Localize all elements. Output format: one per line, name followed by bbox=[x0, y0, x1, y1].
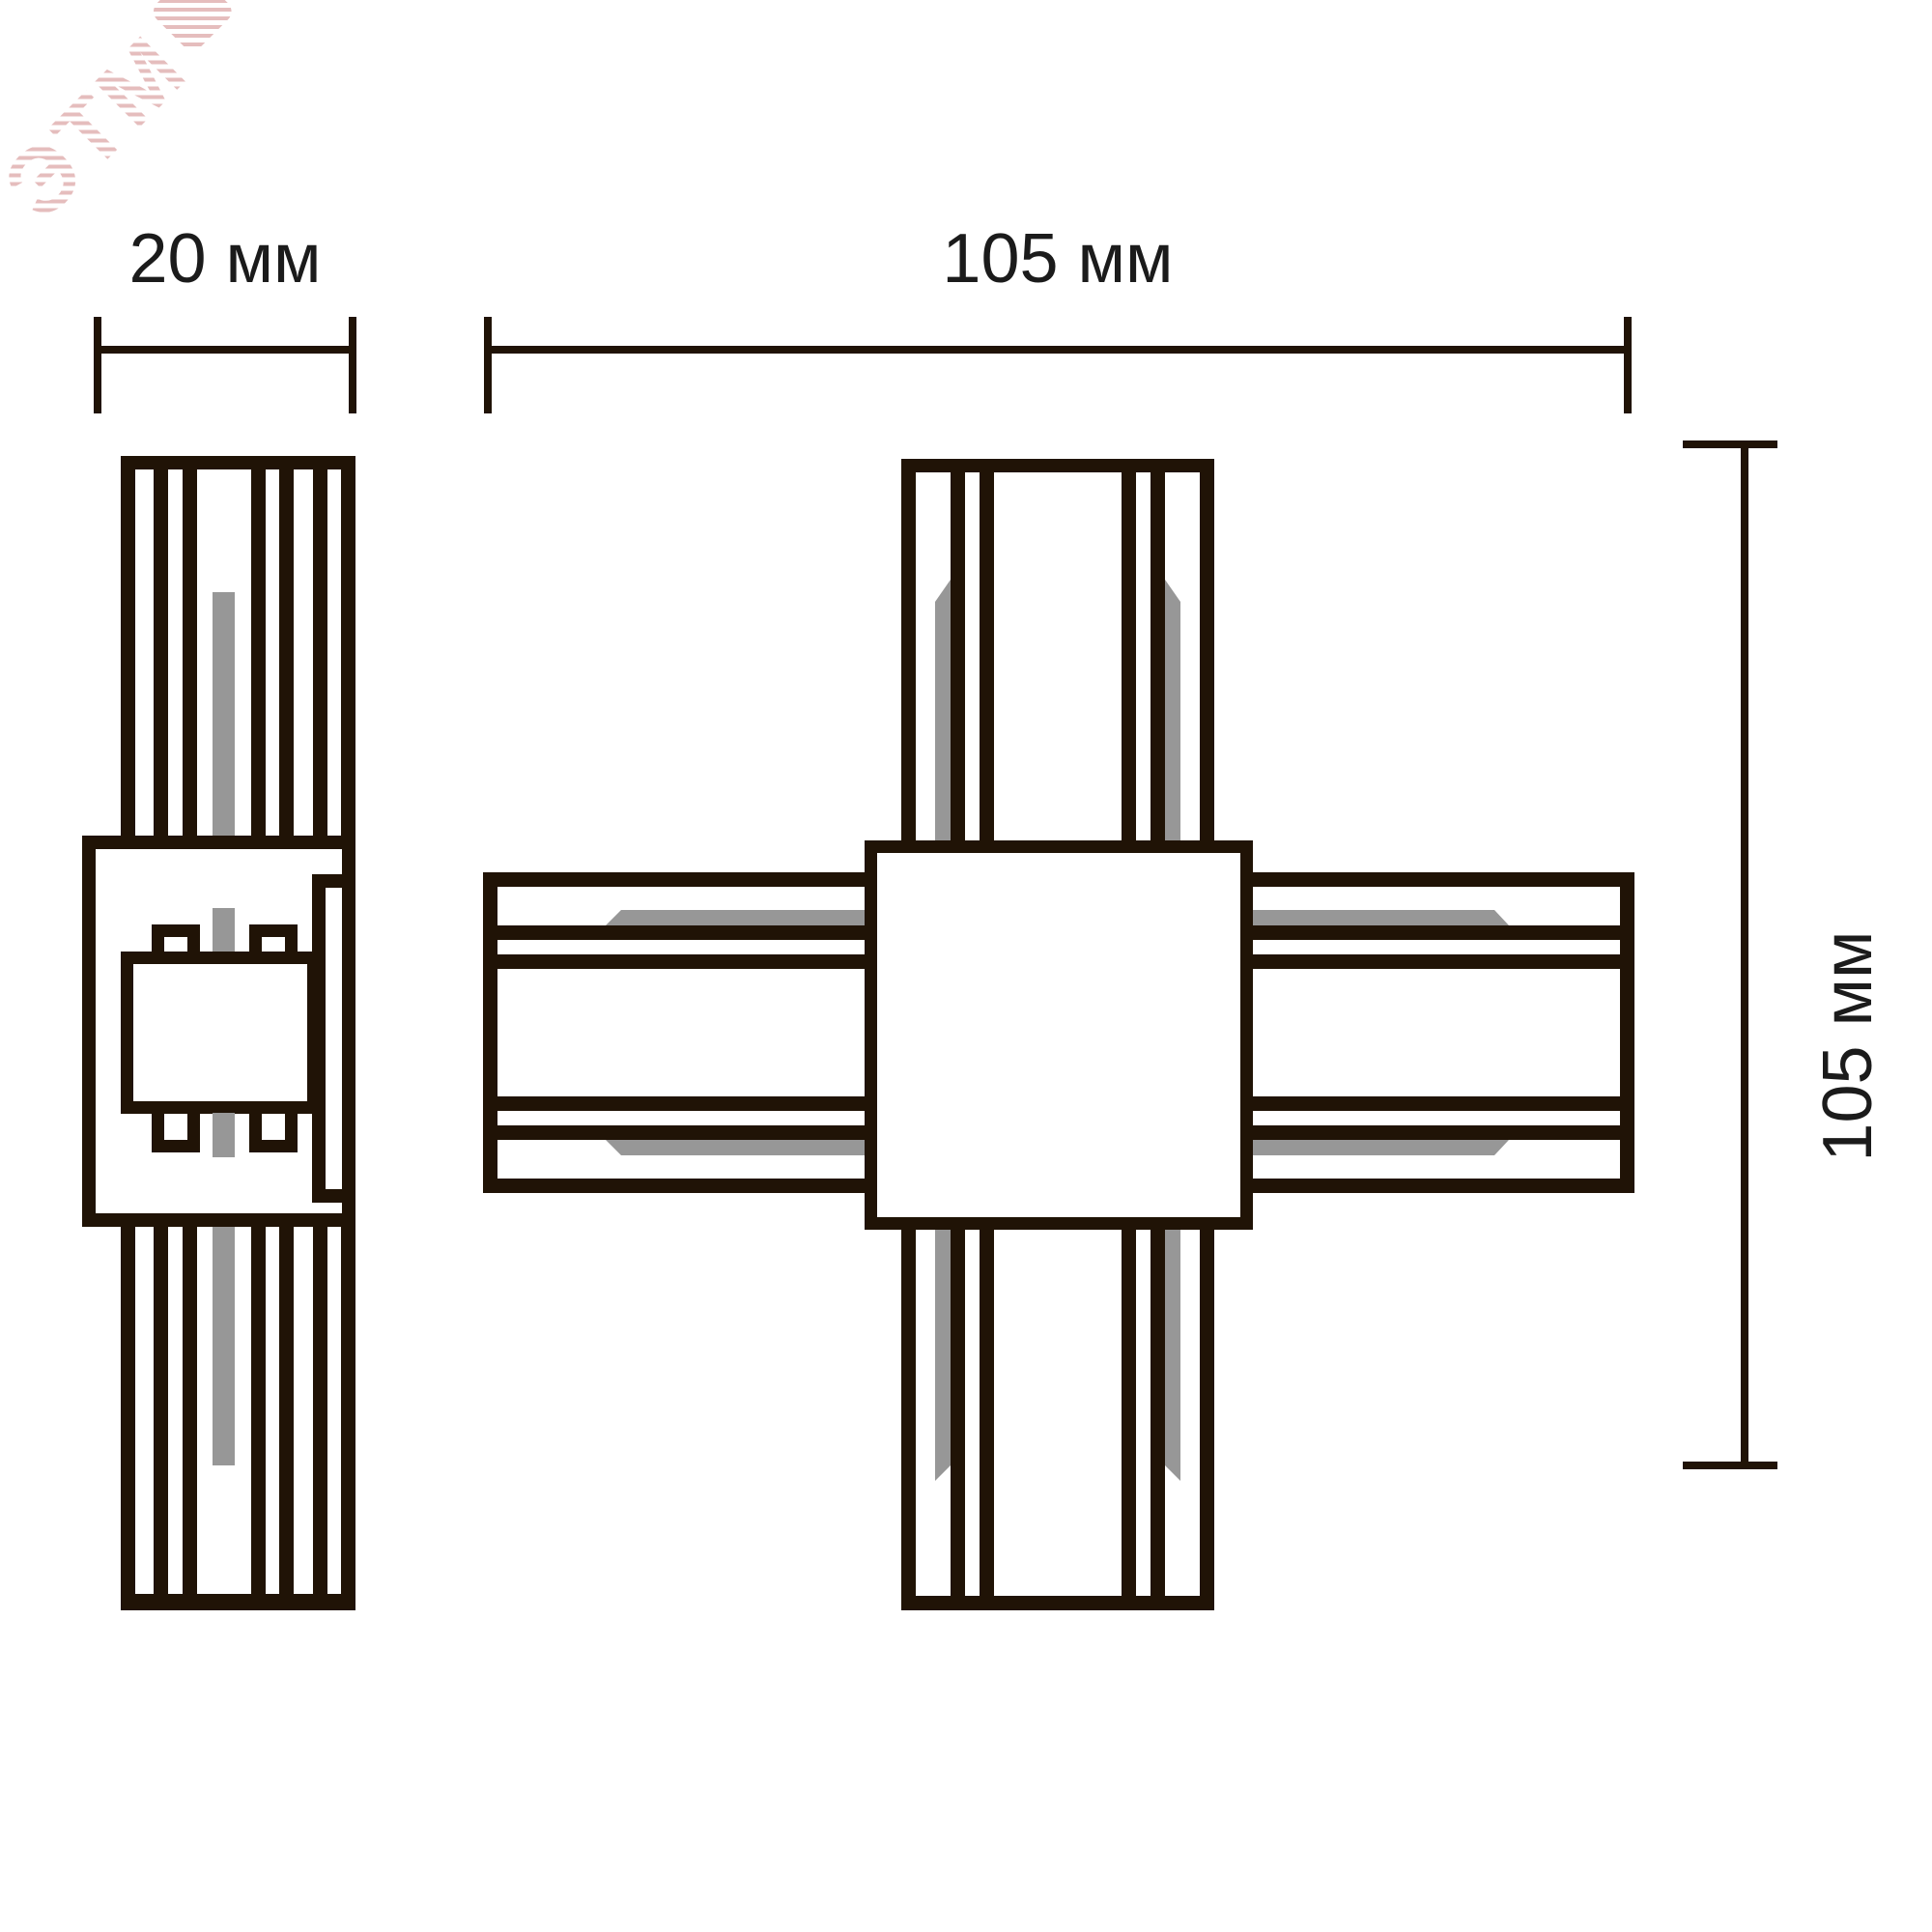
cross-left-arm-rib bbox=[497, 1125, 865, 1140]
cross-center-box bbox=[865, 840, 1253, 1230]
cross-bottom-arm-rib bbox=[980, 1230, 994, 1596]
cross-bottom-arm-rib bbox=[1122, 1230, 1136, 1596]
side-bottom-rail-rib bbox=[154, 1227, 168, 1594]
side-top-rail-rib bbox=[251, 469, 266, 836]
cross-right-arm-top-edge bbox=[1253, 872, 1634, 887]
cross-left-arm-rib bbox=[497, 954, 865, 969]
cross-left-arm-bottom-edge bbox=[483, 1179, 865, 1193]
dim-105mm-width-label: 105 мм bbox=[913, 224, 1203, 294]
side-top-rail-right-wall bbox=[341, 456, 355, 836]
side-top-rail-rib bbox=[154, 469, 168, 836]
side-connector-tab-top-right bbox=[249, 924, 298, 964]
cross-right-arm-rib bbox=[1253, 954, 1620, 969]
side-bottom-conductor-strip bbox=[213, 1227, 235, 1465]
cross-right-arm-conductor-bottom bbox=[1253, 1140, 1509, 1155]
cross-top-arm-left-wall bbox=[901, 459, 916, 840]
side-top-rail-top-edge bbox=[121, 456, 355, 469]
cross-left-arm-top-edge bbox=[483, 872, 865, 887]
cross-bottom-arm-right-wall bbox=[1200, 1230, 1214, 1610]
side-bottom-rail-rib bbox=[279, 1227, 294, 1594]
cross-bottom-arm-left-wall bbox=[901, 1230, 916, 1610]
dim-105mm-height-label: 105 мм bbox=[1813, 901, 1883, 1191]
side-top-rail-left-wall bbox=[121, 456, 135, 836]
dim-105mm-width-line bbox=[488, 346, 1628, 354]
side-bottom-rail-bottom-edge bbox=[121, 1594, 355, 1610]
cross-right-arm-conductor-top bbox=[1253, 910, 1509, 925]
dim-20mm-tick-left bbox=[94, 317, 101, 413]
cross-top-arm-conductor-left bbox=[935, 580, 951, 840]
dim-105mm-width-tick-left bbox=[484, 317, 492, 413]
side-top-rail-rib bbox=[183, 469, 197, 836]
cross-top-arm-rib bbox=[1151, 472, 1165, 840]
etm-watermark-logo: ЭТМ bbox=[0, 0, 291, 253]
dim-20mm-line bbox=[97, 346, 355, 354]
dim-105mm-height-tick-top bbox=[1683, 440, 1777, 448]
cross-top-arm-conductor-right bbox=[1165, 580, 1180, 840]
cross-top-arm-rib bbox=[1122, 472, 1136, 840]
cross-left-arm-rib bbox=[497, 925, 865, 940]
cross-top-arm-right-wall bbox=[1200, 459, 1214, 840]
drawing-canvas: ЭТМ 20 мм 105 мм 105 мм bbox=[0, 0, 1932, 1932]
side-mid-conductor-upper bbox=[213, 908, 235, 952]
side-mid-conductor-lower bbox=[213, 1113, 235, 1157]
cross-right-arm-rib bbox=[1253, 1125, 1620, 1140]
side-top-rail-rib bbox=[313, 469, 327, 836]
cross-bottom-arm-rib bbox=[951, 1230, 965, 1596]
cross-bottom-arm-conductor-right bbox=[1165, 1230, 1180, 1481]
dim-20mm-label: 20 мм bbox=[80, 224, 370, 294]
dim-105mm-height-tick-bottom bbox=[1683, 1462, 1777, 1469]
cross-left-arm-conductor-bottom bbox=[606, 1140, 865, 1155]
cross-bottom-arm-rib bbox=[1151, 1230, 1165, 1596]
side-bottom-rail-left-wall bbox=[121, 1227, 135, 1610]
cross-right-arm-end-cap bbox=[1620, 872, 1634, 1193]
side-bottom-rail-right-wall bbox=[341, 1227, 355, 1610]
side-bottom-rail-rib bbox=[183, 1227, 197, 1594]
side-connector-tab-top-left bbox=[152, 924, 200, 964]
cross-left-arm-conductor-top bbox=[606, 910, 865, 925]
cross-top-arm-end-edge bbox=[901, 459, 1214, 472]
side-bottom-rail-rib bbox=[251, 1227, 266, 1594]
cross-left-arm-rib bbox=[497, 1096, 865, 1111]
cross-top-arm-rib bbox=[980, 472, 994, 840]
side-connector-tab-bottom-left bbox=[152, 1113, 200, 1152]
cross-left-arm-end-cap bbox=[483, 872, 497, 1193]
side-top-rail-rib bbox=[279, 469, 294, 836]
cross-top-arm-rib bbox=[951, 472, 965, 840]
dim-105mm-width-tick-right bbox=[1624, 317, 1632, 413]
cross-right-arm-bottom-edge bbox=[1253, 1179, 1634, 1193]
cross-bottom-arm-end-edge bbox=[901, 1596, 1214, 1610]
dim-105mm-height-line bbox=[1741, 444, 1748, 1465]
dim-20mm-tick-right bbox=[349, 317, 356, 413]
cross-right-arm-rib bbox=[1253, 1096, 1620, 1111]
etm-watermark-text: ЭТМ bbox=[0, 15, 207, 238]
cross-bottom-arm-conductor-left bbox=[935, 1230, 951, 1481]
cross-right-arm-rib bbox=[1253, 925, 1620, 940]
side-connector-tab-bottom-right bbox=[249, 1113, 298, 1152]
side-connector-body bbox=[121, 952, 320, 1114]
side-bottom-rail-rib bbox=[313, 1227, 327, 1594]
side-top-conductor-strip bbox=[213, 592, 235, 836]
